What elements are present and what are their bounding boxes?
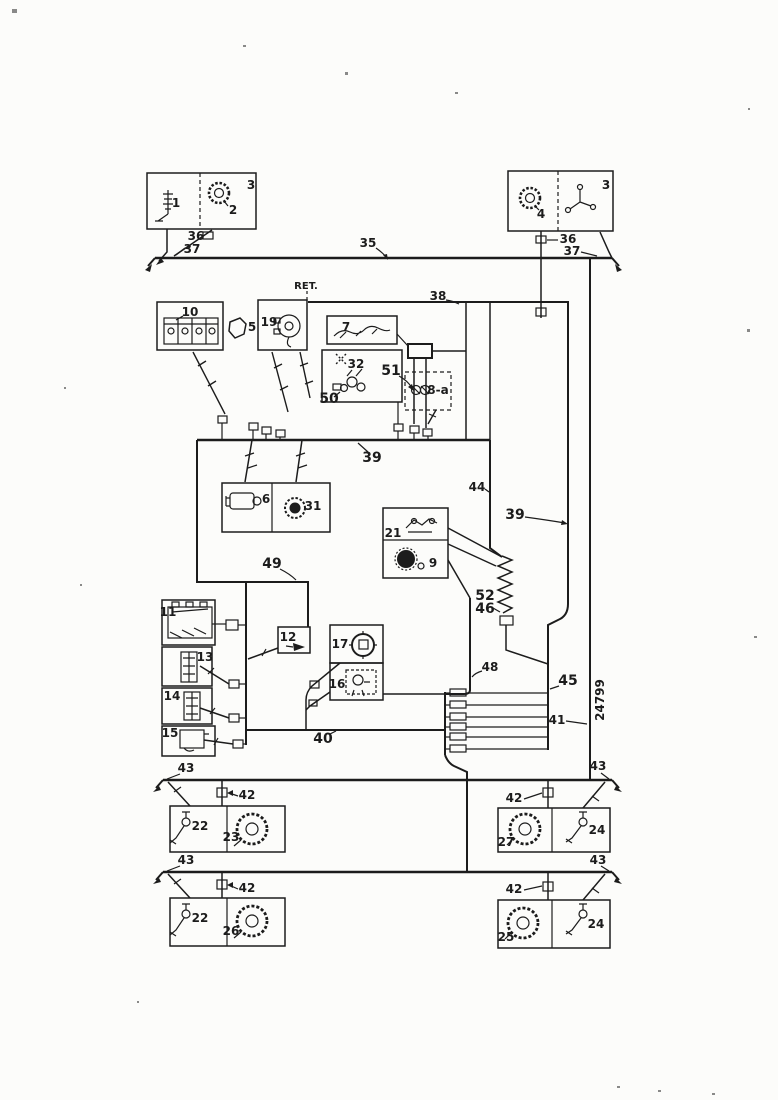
callout-36-left: 36 [188,229,205,243]
callout-43-r1-right: 43 [590,759,607,773]
part-10-fuse-block-glyph [164,318,218,344]
rear-harness-row-2: 43 43 42 42 22 26 [153,853,622,948]
callout-17: 17 [332,637,349,651]
callout-37-right: 37 [564,244,581,258]
part-1-lamp-glyph [155,190,173,221]
part-13-glyph [181,652,197,682]
part-5-group: 5 [229,318,256,338]
part-22-socket-glyph-r1 [170,812,190,844]
callout-37-left: 37 [184,242,201,256]
tail-lamp-box-r1-left: 22 23 [170,806,285,852]
left-connector-row [218,416,285,440]
bus-wire-39: 39 [197,440,490,466]
gauge-box-17: 17 [330,625,383,663]
drawing-number: 24799 [593,679,607,721]
tail-lamp-box-r2-left: 22 26 [170,898,285,946]
right-lamp-feed-wires: 36 37 [536,231,612,318]
fuse-box-14: 14 [162,688,229,724]
callout-3-right: 3 [602,178,610,192]
callout-22-r1: 22 [192,819,209,833]
fuse-block-box: 10 [157,302,223,350]
callout-43-r2-left: 43 [178,853,195,867]
callout-31: 31 [305,499,322,513]
scan-speckles [12,9,757,1095]
relay-box-6-31: 6 31 [222,440,330,532]
callout-51: 51 [381,363,400,379]
callout-26: 26 [223,924,240,938]
battery-box-11: 11 [160,600,226,645]
callout-43-r1-left: 43 [178,761,195,775]
callout-38: 38 [430,289,447,303]
coil-52-46: 52 46 [475,556,548,664]
wire-44-group: 44 39 [469,440,568,557]
harness-box-7: 7 [327,316,408,346]
callout-24-r1: 24 [589,823,606,837]
callout-4: 4 [537,207,545,221]
part-5-glyph [229,318,246,338]
part-21-glyph [406,519,437,533]
part-12-glyph [286,643,305,651]
callout-13: 13 [197,650,214,664]
ret-label: RET. [294,281,318,292]
callout-50: 50 [319,391,339,407]
rear-harness-row-1: 43 43 42 42 22 23 [153,759,622,852]
right-lamp-bracket-glyph [566,185,596,213]
part-19-glyph [274,315,300,347]
part-24-socket-glyph-r2 [566,904,587,935]
callout-25: 25 [498,930,515,944]
wire-40: 40 [246,730,445,747]
left-lamp-feed-wires: 36 37 [156,229,213,265]
callout-41: 41 [549,713,566,727]
wire-49-loop: 49 [197,440,308,745]
callout-1: 1 [172,196,180,210]
callout-39-left: 39 [362,450,381,466]
callout-49: 49 [262,556,281,572]
callout-10: 10 [182,305,199,319]
callout-48: 48 [482,660,499,674]
callout-27: 27 [498,835,515,849]
callout-15: 15 [162,726,179,740]
callout-42-r2-right: 42 [506,882,523,896]
tail-lamp-box-r2-right: 25 24 [498,900,610,948]
fuse-box-13: 13 [162,647,229,686]
part-24-socket-glyph-r1 [566,812,587,843]
ignition-box-21-9: 21 9 [383,508,502,598]
callout-21: 21 [385,526,402,540]
callout-43-r2-right: 43 [590,853,607,867]
callout-42-r1-right: 42 [506,791,523,805]
callout-23: 23 [223,830,240,844]
top-left-lamp-box: 1 2 3 [147,173,256,229]
connector-51-group: 51 [381,363,414,391]
callout-2: 2 [229,203,237,217]
sender-box-16: 16 [329,663,383,700]
callout-22-r2: 22 [192,911,209,925]
callout-45: 45 [558,673,577,689]
callout-39-right: 39 [505,507,524,523]
tail-lamp-box-r1-right: 27 24 [498,808,610,852]
part-17-glyph [349,631,377,659]
part-6-flasher-glyph [226,493,261,509]
part-31-glyph [285,498,305,518]
callout-32: 32 [348,357,365,371]
wire-41: 41 24799 [549,258,607,780]
callout-19: 19 [261,315,278,329]
callout-12: 12 [280,630,297,644]
callout-3-left: 3 [247,178,255,192]
callout-24-r2: 24 [588,917,605,931]
callout-42-r1-left: 42 [239,788,256,802]
part-9-glyph [395,548,424,570]
relay-box-15: 15 [162,726,233,756]
horn-box: 19 [258,300,307,350]
callout-16: 16 [329,677,346,691]
connector-box-12: 12 [248,627,310,659]
callout-7: 7 [342,320,350,334]
callout-5: 5 [248,320,256,334]
scanned-diagram-page: 1 2 3 4 3 35 36 [0,0,778,1100]
part-2-round-lamp-glyph [209,183,229,206]
callout-6: 6 [262,492,270,506]
wire-35: 35 [145,236,622,272]
callout-42-r2-left: 42 [239,881,256,895]
column-connectors [226,620,246,748]
callout-9: 9 [429,556,437,570]
callout-8a: 8-a [427,383,448,397]
callout-14: 14 [164,689,181,703]
part-14-glyph [184,692,200,720]
sender-box-8a: 8-a [405,372,451,424]
callout-11: 11 [160,605,177,619]
part-22-socket-glyph-r2 [170,904,190,936]
gauge-leads [306,663,445,730]
top-right-lamp-box: 4 3 [508,171,613,231]
part-16-glyph [346,670,376,696]
callout-44: 44 [469,480,486,494]
wiring-diagram-svg: 1 2 3 4 3 35 36 [0,0,778,1100]
callout-46: 46 [475,601,494,617]
callout-35: 35 [360,236,377,250]
